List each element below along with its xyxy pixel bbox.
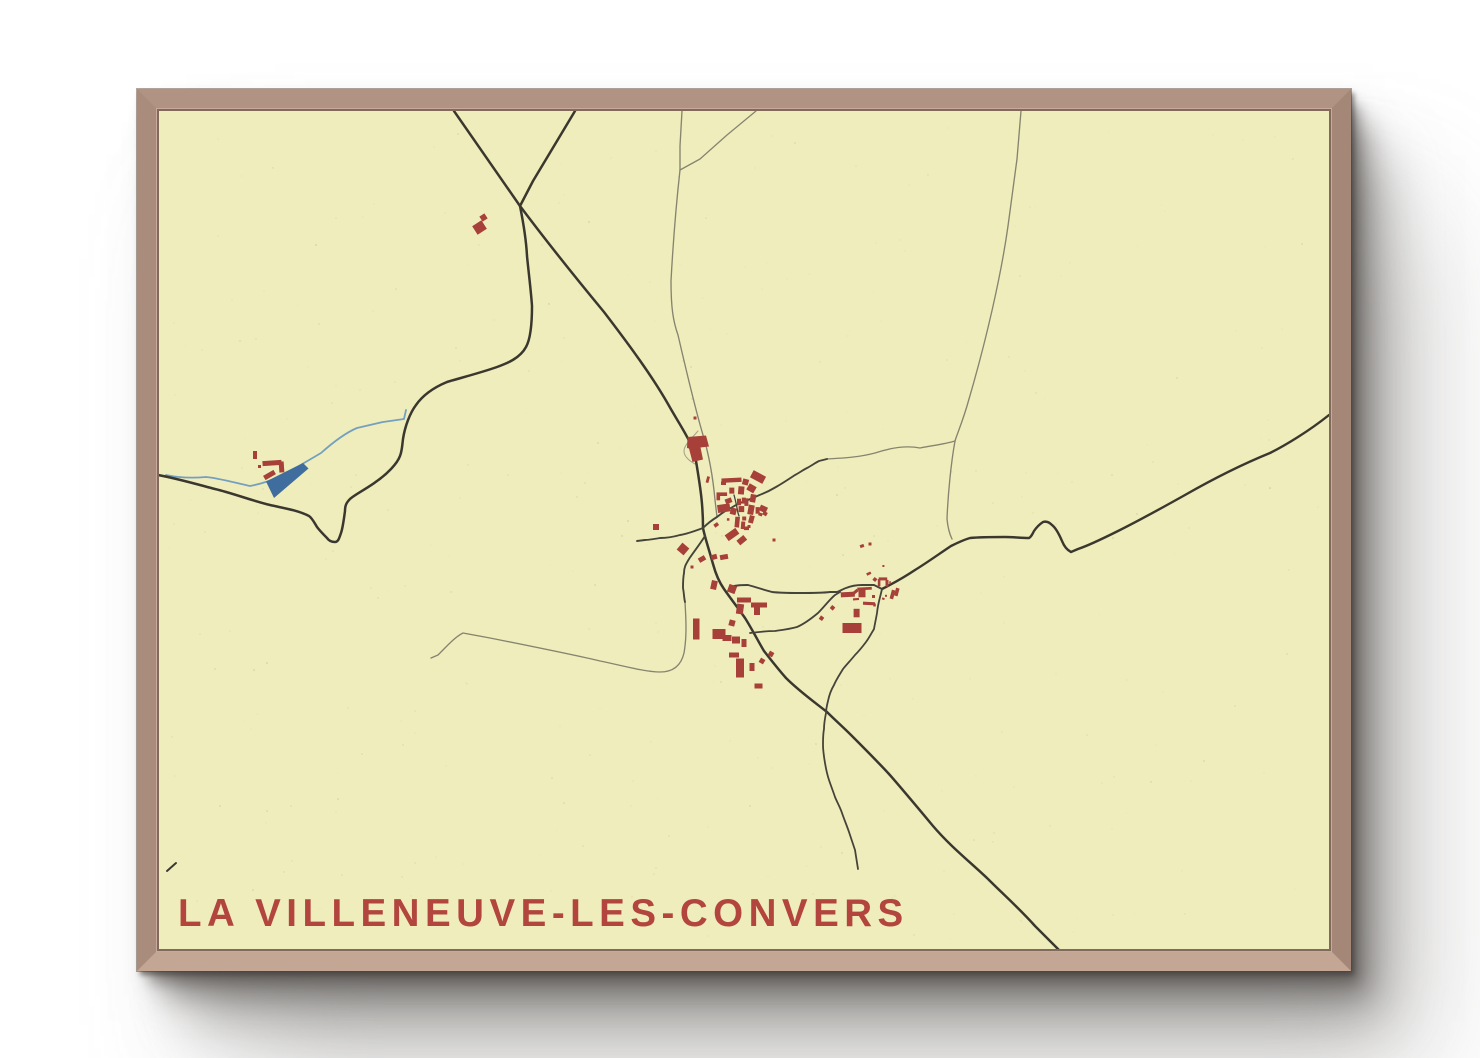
svg-text:LA VILLENEUVE-LES-CONVERS: LA VILLENEUVE-LES-CONVERS (178, 892, 909, 935)
